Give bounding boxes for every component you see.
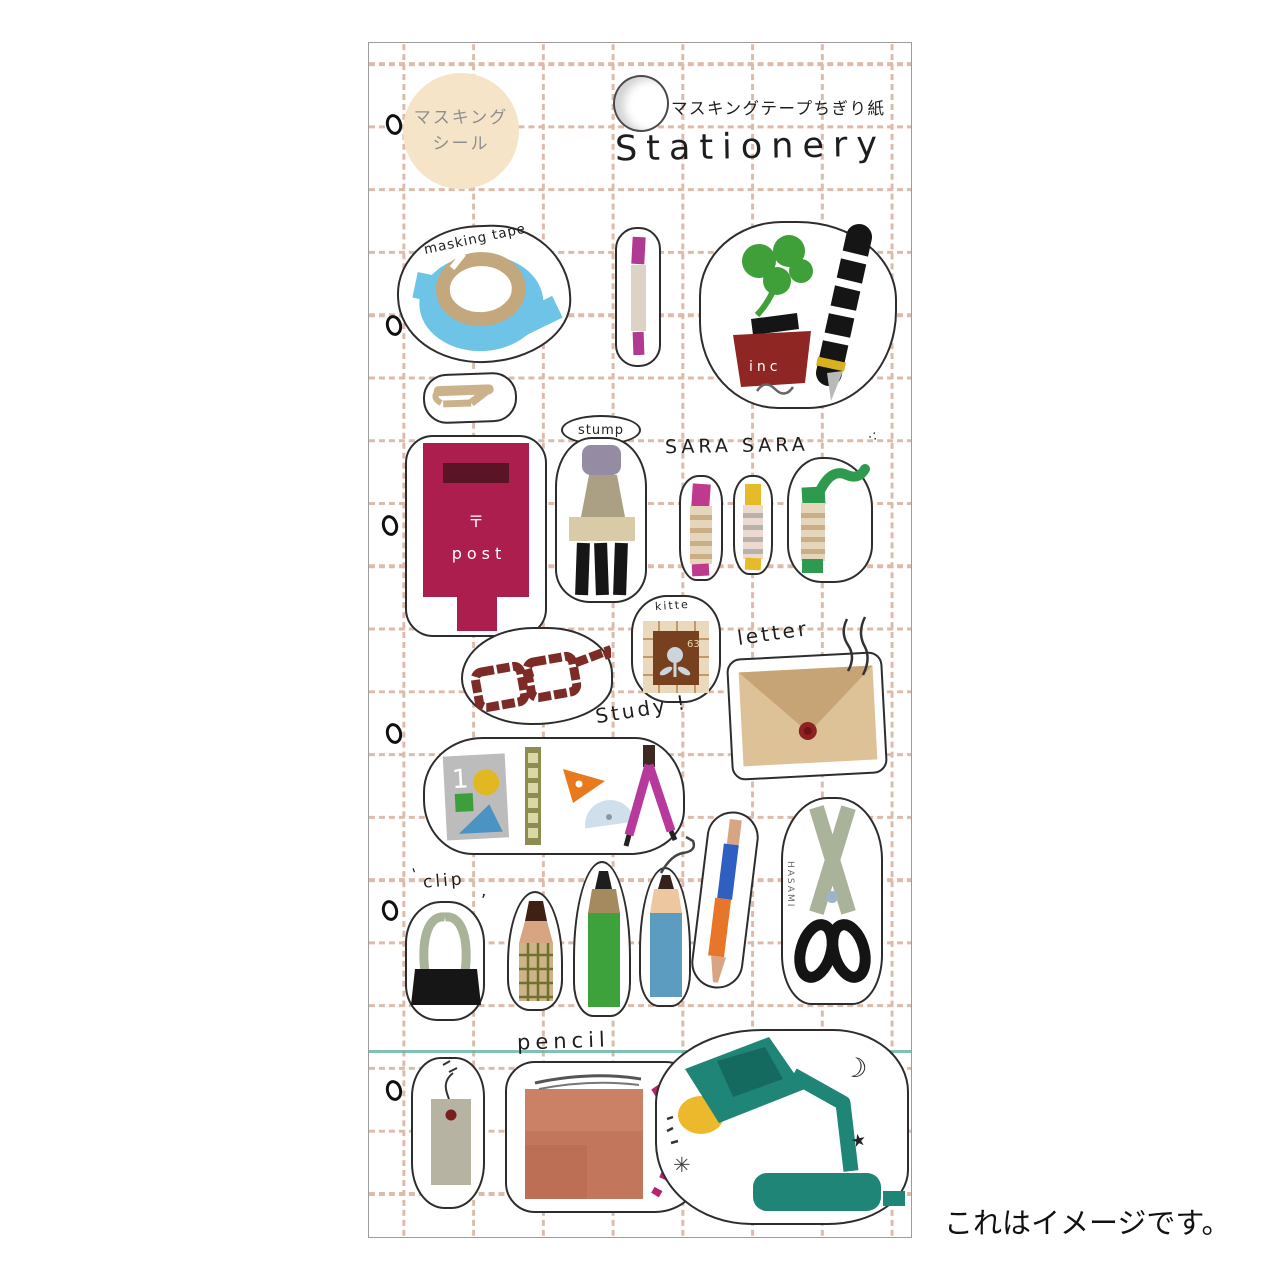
crayon-yellow-sticker — [733, 475, 773, 575]
steam-doodle — [837, 615, 879, 681]
crayon-yellow-art — [735, 477, 771, 573]
scissors-sticker: HASAMI — [781, 797, 883, 1005]
masking-tape-sticker: masking tape — [395, 222, 574, 366]
glasses-art — [463, 629, 611, 723]
glasses-sticker — [461, 627, 613, 725]
pencil-label: pencil — [517, 1027, 611, 1054]
marker-pen-art — [617, 229, 659, 365]
sparkle-doodle: ✳ — [673, 1153, 691, 1177]
ink-quill-art: inc — [701, 223, 895, 407]
hairpin-sticker — [422, 371, 518, 424]
kitte-stamp-sticker: kitte 63 — [631, 595, 721, 703]
kitte-art: 63 — [633, 597, 719, 701]
stamp-art — [557, 439, 645, 601]
kitte-label: kitte — [655, 598, 691, 613]
stamp-sticker — [555, 437, 647, 603]
product-image: マスキング シール マスキングテープちぎり紙 Stationery maskin… — [0, 0, 1280, 1280]
top-punch-hole — [613, 75, 669, 132]
sheet-subtitle: マスキングテープちぎり紙 — [671, 95, 886, 119]
sticker-sheet: マスキング シール マスキングテープちぎり紙 Stationery maskin… — [368, 42, 912, 1238]
ink-label: inc — [749, 359, 781, 375]
post-box-art: 〒 post — [407, 437, 545, 635]
post-box-sticker: 〒 post — [405, 435, 547, 637]
pencil-blue-sticker — [639, 867, 691, 1007]
binder-clip-sticker — [405, 901, 485, 1021]
binder-clip-art — [407, 903, 483, 1019]
pencil-plaid-art — [509, 893, 561, 1009]
book-number: 1 — [451, 764, 469, 795]
crayon-green-art — [789, 459, 871, 581]
crayon-magenta-sticker — [679, 475, 723, 581]
pencil-blue-art — [641, 869, 689, 1005]
crayon-green-sticker — [787, 457, 873, 583]
badge-line1: マスキング — [414, 105, 509, 131]
sara-sara-label: SARA SARA — [665, 434, 809, 459]
stump-label: stump — [578, 423, 624, 438]
comma-doodle: , — [481, 881, 486, 901]
clip-label: clip — [422, 869, 465, 893]
badge: マスキング シール — [403, 73, 519, 189]
desk-lamp-sticker — [655, 1029, 909, 1225]
wire-squiggle-doodle — [657, 831, 707, 879]
tag-sticker — [411, 1057, 485, 1209]
pencil-green-art — [575, 863, 629, 1015]
post-label: post — [452, 544, 507, 563]
pencil-plaid-sticker — [507, 891, 563, 1011]
marker-pen-sticker — [615, 227, 661, 367]
hairpin-art — [424, 373, 516, 422]
sheet-title: Stationery — [615, 125, 887, 170]
scissors-art — [783, 799, 881, 1003]
crayon-magenta-art — [681, 477, 721, 579]
study-set-sticker: 1 — [423, 737, 685, 855]
tag-art — [413, 1059, 483, 1207]
ink-and-quill-sticker: inc — [699, 221, 897, 409]
stamp-number: 63 — [687, 639, 700, 650]
badge-line2: シール — [433, 131, 490, 157]
pencil-green-sticker — [573, 861, 631, 1017]
post-mark: 〒 — [468, 512, 484, 531]
image-disclaimer: これはイメージです。 — [944, 1200, 1231, 1242]
study-set-art: 1 — [425, 739, 683, 853]
